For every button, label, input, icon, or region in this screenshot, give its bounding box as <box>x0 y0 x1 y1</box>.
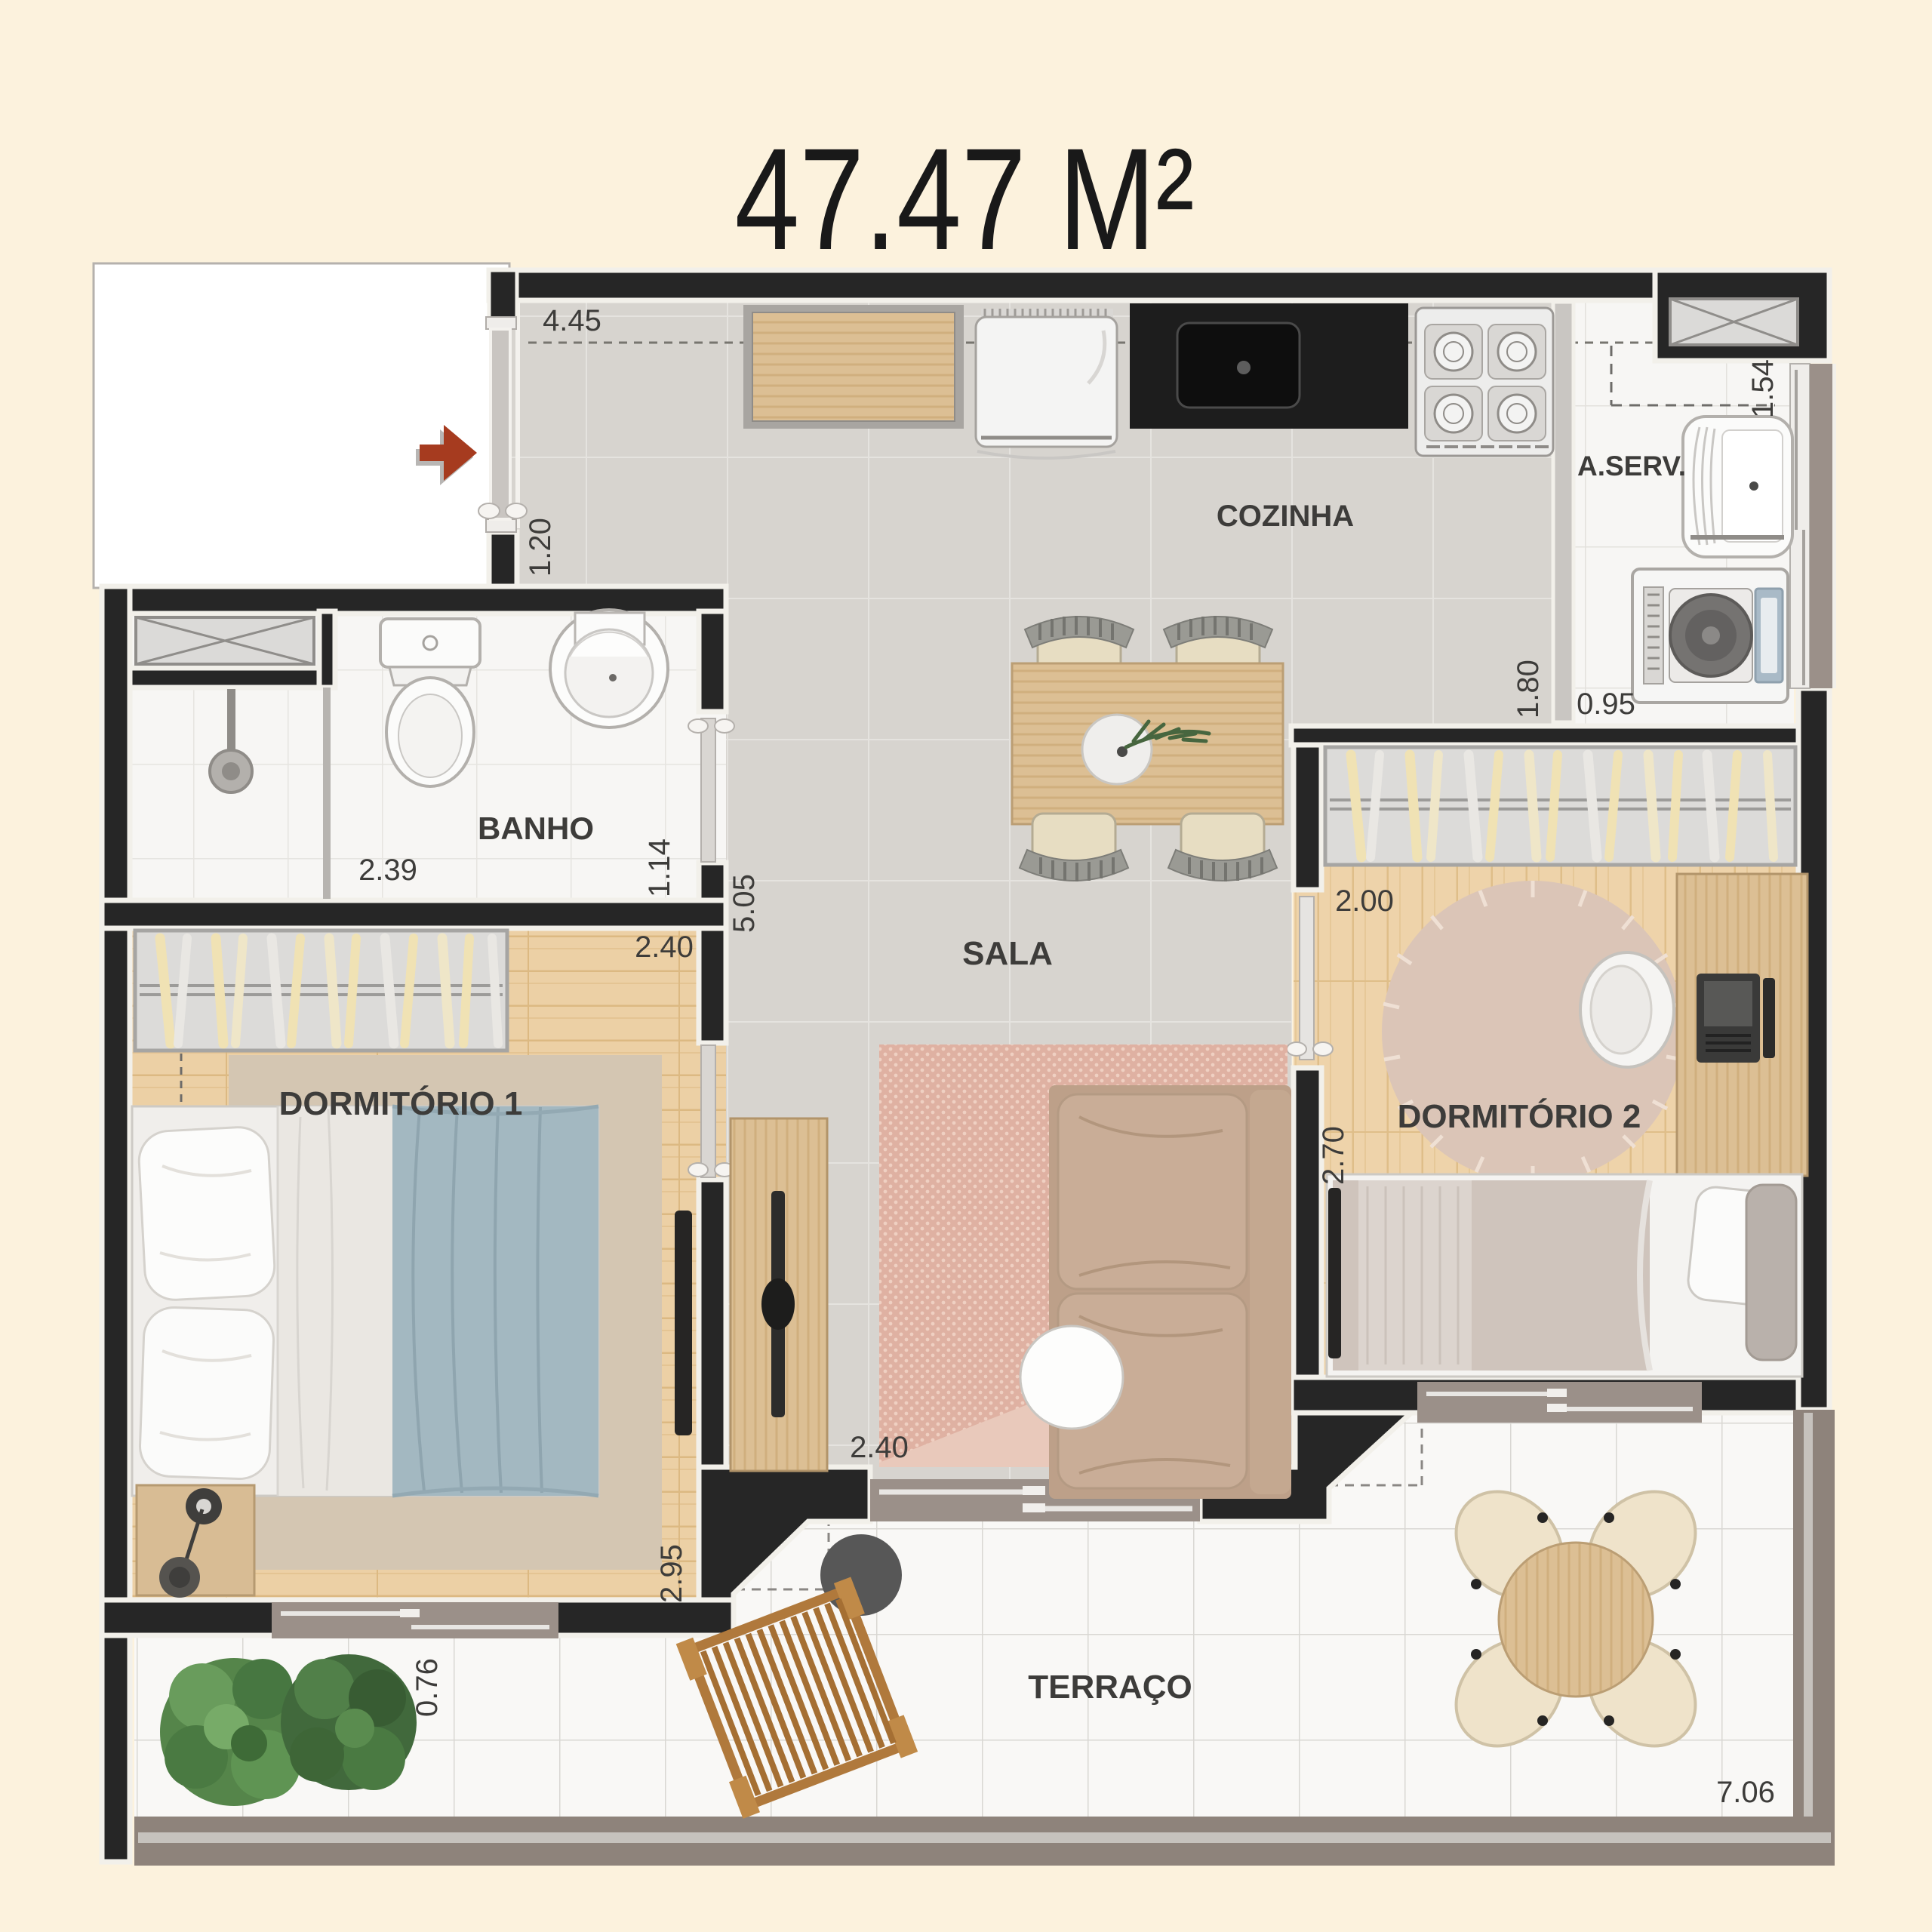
svg-text:TERRAÇO: TERRAÇO <box>1028 1669 1192 1706</box>
svg-text:47.47 M²: 47.47 M² <box>735 118 1195 280</box>
svg-text:1.54: 1.54 <box>1746 359 1780 418</box>
svg-text:5.05: 5.05 <box>728 874 761 933</box>
svg-text:1.14: 1.14 <box>643 838 676 897</box>
svg-text:DORMITÓRIO 1: DORMITÓRIO 1 <box>279 1084 523 1122</box>
svg-text:2.40: 2.40 <box>635 931 694 964</box>
svg-text:0.95: 0.95 <box>1577 688 1635 721</box>
svg-text:SALA: SALA <box>962 935 1053 972</box>
svg-text:COZINHA: COZINHA <box>1217 500 1354 533</box>
svg-text:1.20: 1.20 <box>524 518 557 577</box>
svg-text:7.06: 7.06 <box>1716 1776 1775 1809</box>
svg-text:2.40: 2.40 <box>850 1431 909 1464</box>
svg-text:A.SERV.: A.SERV. <box>1577 451 1686 481</box>
svg-text:2.39: 2.39 <box>358 854 417 887</box>
svg-text:0.76: 0.76 <box>411 1658 444 1717</box>
svg-text:DORMITÓRIO 2: DORMITÓRIO 2 <box>1398 1097 1641 1135</box>
svg-text:BANHO: BANHO <box>478 811 594 846</box>
svg-text:2.70: 2.70 <box>1317 1126 1350 1185</box>
svg-text:2.00: 2.00 <box>1335 884 1394 918</box>
svg-text:2.95: 2.95 <box>655 1544 688 1603</box>
svg-text:4.45: 4.45 <box>543 304 601 337</box>
svg-text:1.80: 1.80 <box>1512 660 1545 718</box>
